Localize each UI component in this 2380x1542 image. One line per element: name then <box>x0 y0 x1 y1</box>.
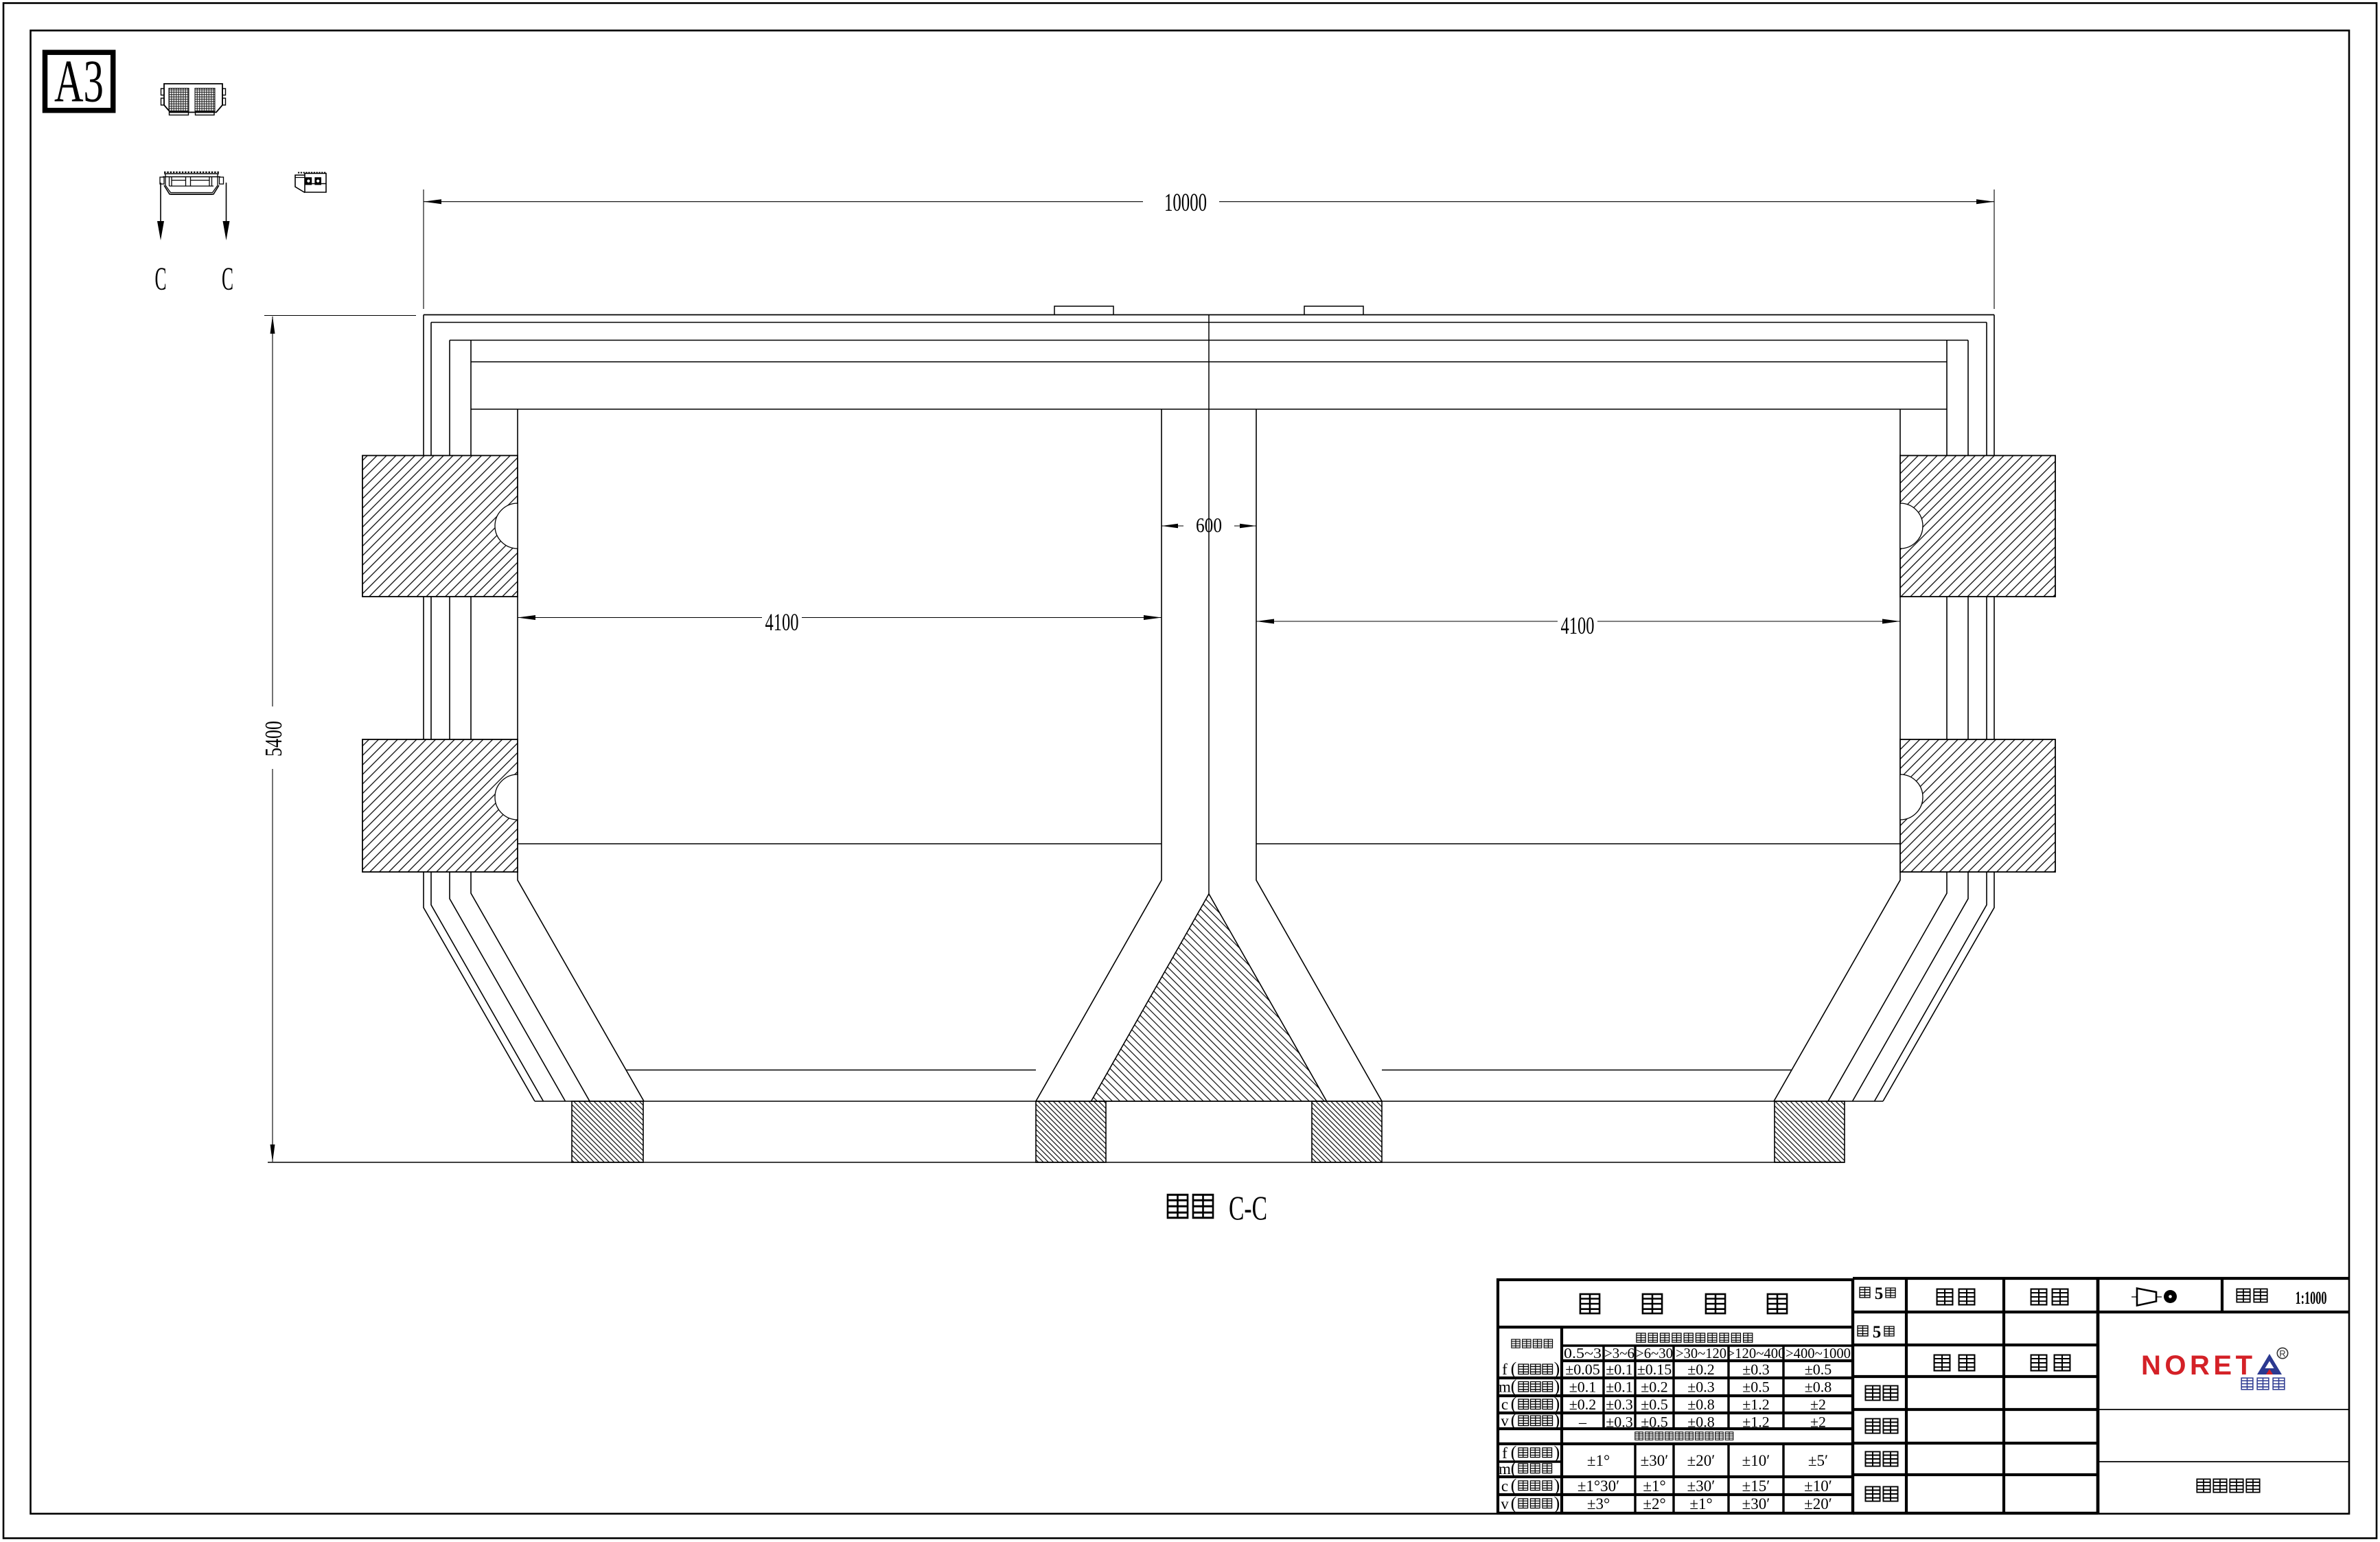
svg-text:±0.2: ±0.2 <box>1569 1396 1597 1413</box>
svg-text:±0.5: ±0.5 <box>1641 1396 1668 1413</box>
svg-text:±0.8: ±0.8 <box>1805 1379 1832 1396</box>
svg-text:4100: 4100 <box>1561 612 1595 639</box>
svg-text:v: v <box>1501 1412 1509 1429</box>
svg-text:10000: 10000 <box>1164 189 1207 217</box>
svg-text:±0.1: ±0.1 <box>1606 1379 1633 1396</box>
svg-text:): ) <box>1554 1410 1560 1430</box>
svg-text:±1.2: ±1.2 <box>1742 1396 1770 1413</box>
svg-text:±2: ±2 <box>1810 1414 1826 1431</box>
svg-text:±30′: ±30′ <box>1641 1452 1669 1469</box>
svg-text:±0.8: ±0.8 <box>1687 1396 1715 1413</box>
svg-text:C-C: C-C <box>1229 1188 1267 1227</box>
svg-text:1:1000: 1:1000 <box>2296 1288 2327 1308</box>
svg-text:f: f <box>1502 1445 1507 1462</box>
svg-text:5: 5 <box>1875 1285 1884 1303</box>
svg-text:±30′: ±30′ <box>1742 1495 1770 1512</box>
svg-text:±1°: ±1° <box>1643 1477 1665 1495</box>
svg-text:±20′: ±20′ <box>1687 1452 1715 1469</box>
svg-text:NORET: NORET <box>2141 1350 2256 1381</box>
svg-text:±0.5: ±0.5 <box>1805 1361 1832 1378</box>
svg-text:±1°: ±1° <box>1689 1495 1712 1512</box>
svg-text:A3: A3 <box>54 49 104 115</box>
svg-text:): ) <box>1554 1442 1560 1462</box>
svg-text:±15′: ±15′ <box>1742 1477 1770 1495</box>
svg-text:): ) <box>1554 1493 1560 1513</box>
svg-text:±3°: ±3° <box>1587 1495 1610 1512</box>
svg-text:±0.1: ±0.1 <box>1569 1379 1597 1396</box>
svg-text:±5′: ±5′ <box>1808 1452 1828 1469</box>
svg-text:v: v <box>1501 1495 1509 1512</box>
svg-text:(: ( <box>1511 1493 1517 1513</box>
svg-text:f: f <box>1502 1361 1507 1378</box>
svg-text:±0.5: ±0.5 <box>1742 1379 1770 1396</box>
svg-text:c: c <box>1501 1477 1508 1495</box>
svg-text:C: C <box>222 261 233 297</box>
svg-text:–: – <box>1578 1414 1587 1431</box>
svg-text:>30~120: >30~120 <box>1676 1345 1726 1361</box>
svg-text:±2: ±2 <box>1810 1396 1826 1413</box>
svg-text:): ) <box>1554 1475 1560 1495</box>
svg-text:>6~30: >6~30 <box>1636 1345 1673 1361</box>
svg-text:±20′: ±20′ <box>1804 1495 1832 1512</box>
svg-text:0.5~3: 0.5~3 <box>1564 1345 1602 1361</box>
svg-text:±0.2: ±0.2 <box>1641 1379 1668 1396</box>
svg-text:600: 600 <box>1196 513 1222 537</box>
svg-text:±0.8: ±0.8 <box>1687 1414 1715 1431</box>
svg-text:±0.3: ±0.3 <box>1687 1379 1715 1396</box>
svg-text:>3~6: >3~6 <box>1604 1345 1634 1361</box>
svg-text:±0.3: ±0.3 <box>1742 1361 1770 1378</box>
svg-text:±1.2: ±1.2 <box>1742 1414 1770 1431</box>
svg-text:±0.15: ±0.15 <box>1637 1361 1672 1378</box>
svg-text:R: R <box>2279 1348 2285 1359</box>
svg-text:±1°: ±1° <box>1587 1452 1610 1469</box>
svg-text:±0.1: ±0.1 <box>1606 1361 1633 1378</box>
svg-text:4100: 4100 <box>765 608 799 636</box>
svg-text:±0.2: ±0.2 <box>1687 1361 1715 1378</box>
svg-text:(: ( <box>1511 1475 1517 1495</box>
svg-text:c: c <box>1501 1396 1508 1413</box>
svg-text:m: m <box>1499 1379 1511 1396</box>
svg-text:m: m <box>1499 1460 1511 1477</box>
svg-text:C: C <box>155 261 167 297</box>
svg-text:±0.3: ±0.3 <box>1606 1396 1633 1413</box>
svg-text:±0.5: ±0.5 <box>1641 1414 1668 1431</box>
svg-text:>120~400: >120~400 <box>1727 1345 1786 1361</box>
svg-text:±0.05: ±0.05 <box>1565 1361 1600 1378</box>
svg-text:±10′: ±10′ <box>1804 1477 1832 1495</box>
svg-text:(: ( <box>1511 1410 1517 1430</box>
svg-text:±30′: ±30′ <box>1687 1477 1715 1495</box>
svg-text:±1°30′: ±1°30′ <box>1578 1477 1619 1495</box>
svg-text:±0.3: ±0.3 <box>1606 1414 1633 1431</box>
svg-text:5: 5 <box>1873 1323 1882 1342</box>
svg-text:±2°: ±2° <box>1643 1495 1665 1512</box>
svg-text:±10′: ±10′ <box>1742 1452 1770 1469</box>
svg-text:>400~1000: >400~1000 <box>1786 1345 1851 1361</box>
svg-text:5400: 5400 <box>260 721 287 757</box>
